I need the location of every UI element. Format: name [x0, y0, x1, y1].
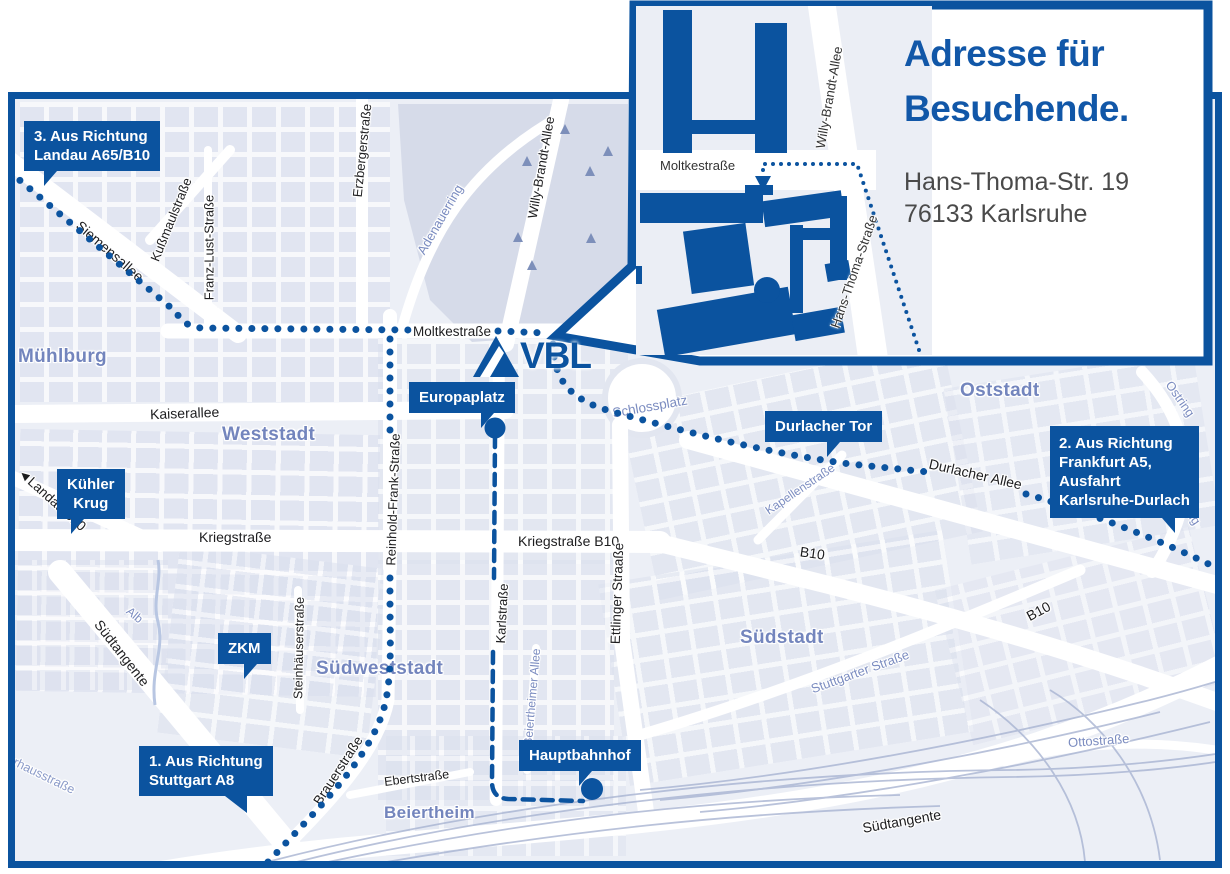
vbl-logo-text: VBL [520, 334, 591, 378]
callout-zkm: ZKM [218, 633, 271, 664]
callout-landau: 3. Aus Richtung Landau A65/B10 [24, 121, 160, 171]
inset-title: Adresse für Besuchende. [904, 26, 1129, 136]
callout-kuehler-krug: Kühler Krug [57, 469, 125, 519]
callout-durlacher-tor: Durlacher Tor [765, 411, 882, 442]
inset-detail-map: Moltkestraße Willy-Brandt-Allee Hans-Tho… [636, 6, 1203, 355]
inset-street-label-moltkestrasse: Moltkestraße [660, 158, 735, 173]
vbl-logo: VBL [472, 334, 591, 378]
callout-frankfurt: 2. Aus Richtung Frankfurt A5, Ausfahrt K… [1050, 426, 1199, 518]
callout-stuttgart: 1. Aus Richtung Stuttgart A8 [139, 746, 273, 796]
inset-address: Hans-Thoma-Str. 19 76133 Karlsruhe [904, 166, 1129, 230]
callout-europaplatz: Europaplatz [409, 382, 515, 413]
vbl-triangle-icon [472, 334, 520, 378]
callout-hauptbahnhof: Hauptbahnhof [519, 740, 641, 771]
karlsruhe-directions-map: Siemensallee Kußmaulstraße Franz-Lust-St… [0, 0, 1230, 874]
